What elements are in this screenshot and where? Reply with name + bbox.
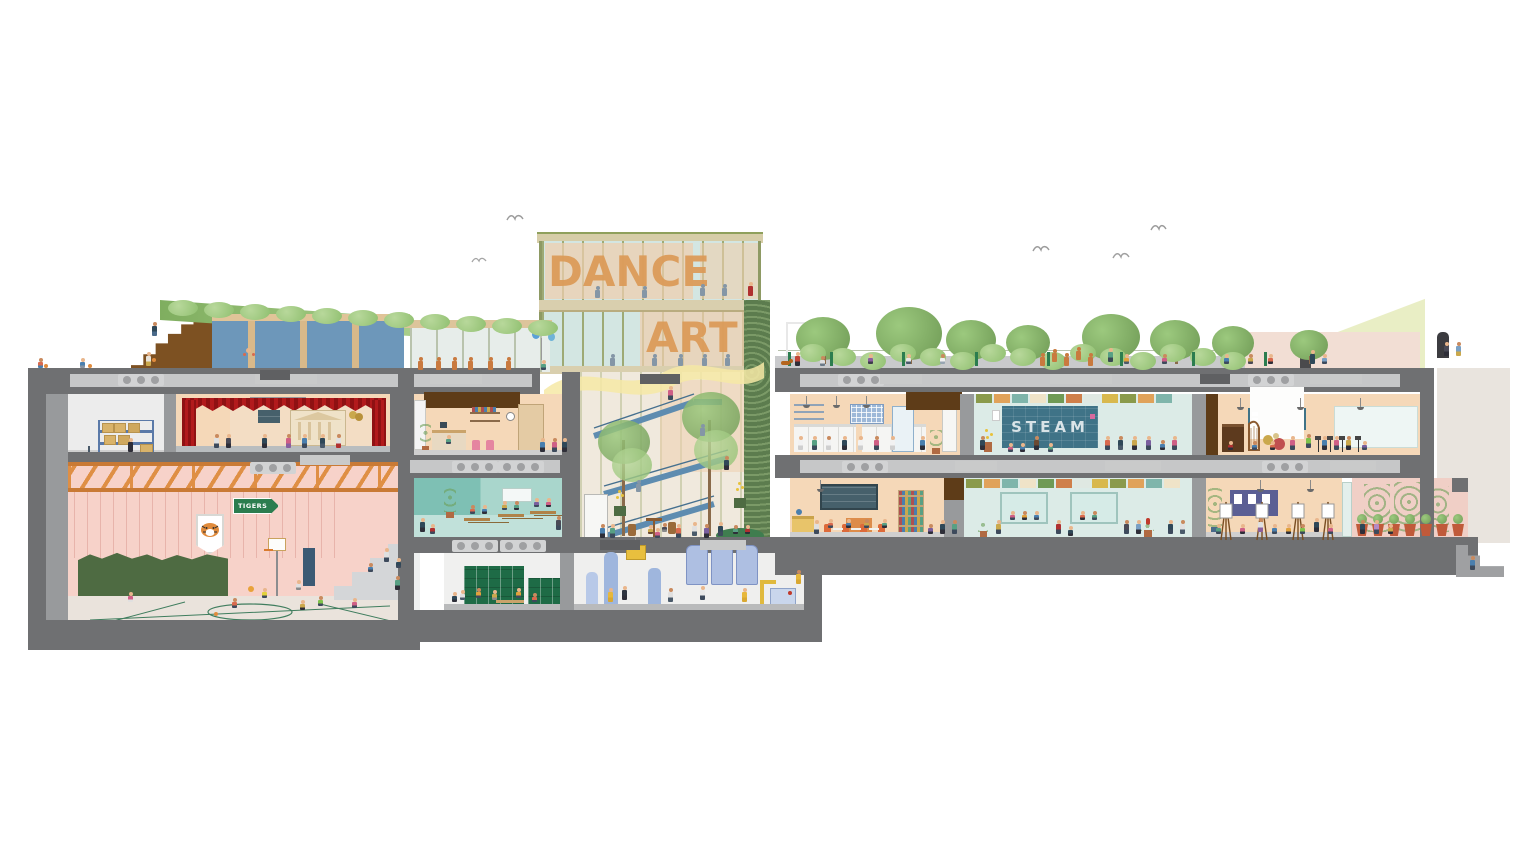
person-figure	[600, 524, 605, 538]
storage-theater-wall	[164, 394, 176, 455]
person-figure	[1322, 436, 1327, 450]
slab-panel	[1105, 461, 1161, 471]
vent-circle	[151, 376, 159, 384]
vent-circle	[1281, 376, 1289, 384]
tile-band-tile	[1012, 394, 1028, 403]
tile-band-tile	[1102, 394, 1118, 403]
tile-band-tile	[1030, 394, 1046, 403]
sunflower	[616, 496, 619, 499]
art-display-card	[1234, 494, 1242, 504]
person-figure	[692, 522, 697, 536]
person-figure	[430, 524, 435, 534]
person-figure	[864, 519, 869, 528]
person-figure	[1068, 526, 1073, 536]
glass-partition	[1342, 482, 1352, 537]
orange-silhouette-figure	[506, 357, 511, 370]
person-figure	[940, 354, 945, 364]
cabinet-light	[788, 591, 792, 595]
orange-silhouette-figure	[1040, 353, 1045, 366]
person-figure	[795, 352, 800, 366]
person-figure	[1022, 511, 1027, 520]
person-figure	[906, 354, 911, 364]
silhouette-figure	[678, 354, 683, 366]
silhouette-figure	[725, 354, 730, 366]
person-figure	[146, 352, 151, 366]
person-figure	[514, 501, 519, 510]
hanging-lamp	[1240, 398, 1241, 407]
person-figure	[608, 588, 613, 602]
yellow-pipe	[760, 580, 776, 584]
hanging-lamp	[806, 396, 807, 405]
person-figure	[798, 436, 803, 450]
cafe-chair	[628, 524, 636, 536]
storage-box	[102, 423, 114, 433]
upright-piano	[1222, 424, 1244, 452]
tile-band-tile	[984, 479, 1000, 488]
person-figure	[1008, 443, 1013, 452]
locker-bench	[496, 600, 524, 603]
person-figure	[1146, 436, 1151, 450]
person-figure	[541, 360, 546, 370]
water-tank	[686, 545, 708, 585]
person-figure	[1252, 441, 1257, 450]
right-ground-slab	[775, 537, 1478, 575]
basketball	[44, 364, 48, 368]
person-figure	[1240, 524, 1245, 534]
steam-mural-label: STEAM	[1011, 418, 1089, 436]
tile-band-tile	[1002, 479, 1018, 488]
tile-band-tile	[1110, 479, 1126, 488]
classroom-blackboard	[820, 484, 878, 510]
person-figure	[1132, 436, 1137, 450]
balloon-strings	[541, 338, 542, 360]
person-figure	[562, 438, 567, 452]
person-figure	[1108, 348, 1113, 362]
person-figure	[296, 580, 301, 590]
person-figure	[534, 498, 539, 507]
music-stand-top	[1315, 436, 1321, 440]
temple-column	[298, 422, 301, 440]
greenhouse-pot-plant	[1421, 514, 1431, 524]
person-figure	[1048, 443, 1053, 452]
orange-silhouette-figure	[418, 357, 423, 370]
person-figure	[1374, 520, 1379, 534]
person-figure	[1328, 524, 1333, 534]
person-figure	[420, 518, 425, 532]
classroom-bookcase	[898, 490, 924, 536]
office-shelf	[470, 412, 500, 414]
person-figure	[395, 576, 400, 590]
person-figure	[668, 386, 673, 400]
person-figure	[396, 558, 401, 568]
basketball	[214, 612, 218, 616]
person-figure	[226, 434, 231, 448]
person-figure	[610, 524, 615, 538]
globe	[796, 509, 802, 515]
person-figure	[1456, 342, 1461, 356]
corridor-art-wall	[1192, 478, 1206, 537]
person-figure	[1360, 520, 1365, 534]
person-figure	[874, 436, 879, 450]
person-figure	[996, 520, 1001, 534]
person-figure	[502, 501, 507, 510]
person-figure	[540, 438, 545, 452]
bird-icon	[471, 255, 487, 265]
person-figure	[476, 588, 481, 598]
silhouette-figure	[702, 354, 707, 366]
classroom-header	[944, 478, 964, 500]
swimmer	[246, 348, 251, 353]
orange-silhouette-figure	[1064, 353, 1069, 366]
orange-silhouette-figure	[468, 357, 473, 370]
person-figure	[492, 590, 497, 600]
gym-door	[303, 548, 315, 586]
theater-chalkboard	[258, 410, 280, 423]
greenhouse-top-post	[1452, 478, 1468, 492]
vent-circle	[485, 542, 493, 550]
slab-panel	[880, 374, 922, 384]
lab-cabinet	[892, 406, 914, 452]
fence-post	[1192, 352, 1195, 366]
vent-circle	[1253, 376, 1261, 384]
person-figure	[920, 436, 925, 450]
cafeteria-whiteboard	[502, 488, 532, 502]
tiger-mascot-icon	[200, 522, 220, 538]
person-figure	[1268, 354, 1273, 364]
person-figure	[320, 434, 325, 448]
slab-panel	[1330, 461, 1376, 471]
person-figure	[828, 519, 833, 528]
classroom-desk	[833, 528, 843, 530]
basketball-rim	[264, 549, 273, 551]
person-figure	[742, 588, 747, 602]
person-figure	[38, 358, 43, 368]
hanging-lamp	[866, 396, 867, 405]
person-figure	[1180, 520, 1185, 534]
slab-panel-dark	[640, 374, 680, 384]
person-figure	[1388, 524, 1393, 534]
atrium-tree	[612, 448, 652, 482]
person-figure	[1444, 342, 1449, 356]
orange-silhouette-figure	[436, 357, 441, 370]
storage-box	[104, 435, 116, 445]
person-figure	[286, 434, 291, 448]
vent-circle	[857, 376, 865, 384]
person-figure	[532, 593, 537, 602]
tile-band-tile	[1120, 394, 1136, 403]
pool-hall-column	[352, 321, 359, 374]
slab-panel-dark	[600, 540, 640, 550]
person-figure	[1362, 441, 1367, 450]
person-figure	[1168, 520, 1173, 534]
person-figure	[814, 520, 819, 534]
fence-post	[902, 352, 905, 366]
person-figure	[1334, 436, 1339, 450]
plant-pot	[932, 448, 940, 454]
person-figure	[1314, 518, 1319, 532]
person-figure	[980, 436, 985, 450]
tile-band-tile	[1084, 394, 1100, 403]
person-figure	[858, 436, 863, 450]
sunflower-planter	[734, 498, 746, 508]
drama-masks-icon	[348, 410, 364, 422]
exit-steps	[1456, 545, 1504, 577]
music-stand	[1318, 440, 1319, 452]
person-figure	[1216, 524, 1221, 534]
fence-post	[1264, 352, 1267, 366]
tile-band-tile	[1066, 394, 1082, 403]
person-figure	[1322, 354, 1327, 364]
person-figure	[1286, 524, 1291, 534]
vent-circle	[471, 542, 479, 550]
silhouette-figure	[595, 286, 600, 298]
person-figure	[262, 588, 267, 598]
hanging-lamp	[820, 480, 821, 489]
greenhouse-pot-plant	[1389, 514, 1399, 524]
person-figure	[1056, 520, 1061, 534]
vent-circle	[503, 463, 511, 471]
person-figure	[704, 524, 709, 538]
cafeteria-table	[464, 518, 490, 521]
slab-panel	[300, 455, 350, 465]
basement-foundation-slab	[412, 610, 822, 642]
gas-cylinder	[648, 568, 661, 608]
plant-pot	[446, 512, 454, 518]
silhouette-figure	[610, 354, 615, 366]
basement-divider-wall	[560, 553, 574, 610]
silhouette-figure	[652, 354, 657, 366]
tigers-pennant: TIGERS	[233, 498, 279, 514]
vent-circle	[533, 542, 541, 550]
orange-silhouette-figure	[488, 357, 493, 370]
person-figure	[1034, 436, 1039, 450]
fence-post	[975, 352, 978, 366]
silhouette-figure	[722, 284, 727, 296]
person-figure	[1118, 436, 1123, 450]
person-figure	[336, 434, 341, 448]
cafeteria-table	[530, 511, 556, 514]
bird-icon	[1032, 243, 1050, 254]
orange-silhouette-figure	[1088, 353, 1093, 366]
bird-icon	[506, 212, 524, 223]
person-figure	[1270, 441, 1275, 450]
person-figure	[1124, 520, 1129, 534]
easel	[1290, 500, 1306, 542]
vent-circle	[457, 463, 465, 471]
tile-band-tile	[1048, 394, 1064, 403]
person-figure	[152, 322, 157, 336]
temple-column	[308, 422, 311, 440]
easel	[1320, 500, 1336, 542]
lab-commons-wall	[960, 394, 974, 455]
greenhouse-pot-plant	[1453, 514, 1463, 524]
person-figure	[846, 519, 851, 528]
person-figure	[1346, 436, 1351, 450]
atrium-left-wall	[562, 372, 580, 540]
right-end-wall	[1420, 368, 1434, 538]
vent-circle	[1295, 463, 1303, 471]
person-figure	[318, 596, 323, 606]
roof-bush	[860, 352, 886, 370]
silhouette-figure	[700, 284, 705, 296]
person-figure	[940, 520, 945, 534]
person-figure	[556, 516, 561, 530]
lab-beam	[906, 392, 962, 410]
living-green-wall	[744, 300, 770, 540]
dog-head	[789, 359, 793, 363]
vent-circle	[283, 464, 291, 472]
person-figure	[128, 438, 133, 452]
greenhouse-pot-plant	[1405, 514, 1415, 524]
tile-band-tile	[1138, 394, 1154, 403]
person-figure	[1470, 556, 1475, 570]
person-figure	[812, 436, 817, 450]
storage-box	[128, 423, 140, 433]
person-figure	[368, 563, 373, 572]
person-figure	[1092, 511, 1097, 520]
vent-circle	[255, 464, 263, 472]
tile-band-tile	[1128, 479, 1144, 488]
basketball	[88, 364, 92, 368]
person-figure	[655, 528, 660, 538]
roof-bush	[830, 348, 856, 366]
person-figure	[1310, 350, 1315, 364]
person-figure	[1300, 524, 1305, 534]
temple-column	[328, 422, 331, 440]
water-tank	[711, 545, 733, 585]
lab-plant	[930, 430, 942, 448]
wall-poster	[992, 410, 1000, 421]
silhouette-figure	[636, 480, 641, 492]
silhouette-figure	[700, 424, 705, 436]
person-figure	[384, 548, 389, 562]
hanging-lamp	[1360, 398, 1361, 407]
person-figure	[796, 570, 801, 584]
person-figure	[516, 588, 521, 598]
person-figure	[214, 434, 219, 448]
person-figure	[80, 358, 85, 368]
vent-circle	[471, 463, 479, 471]
tower-floor-band	[539, 300, 761, 312]
person-figure	[1228, 441, 1233, 450]
person-figure	[842, 436, 847, 450]
vent-circle	[1281, 463, 1289, 471]
person-figure	[882, 519, 887, 528]
hanging-lamp	[836, 396, 837, 405]
slab-panel	[1050, 374, 1112, 384]
person-figure	[546, 498, 551, 507]
person-figure	[1248, 354, 1253, 364]
vent-circle	[269, 464, 277, 472]
person-figure	[748, 282, 753, 296]
person-figure	[820, 356, 825, 366]
person-figure	[662, 523, 667, 532]
tile-band-tile	[1156, 394, 1172, 403]
plant-pot	[1144, 530, 1152, 537]
center-left-wall	[398, 368, 414, 622]
vent-circle	[875, 463, 883, 471]
tile-band-tile	[1146, 479, 1162, 488]
person-figure	[1010, 511, 1015, 520]
theater-curtain-right	[372, 400, 386, 447]
person-figure	[668, 588, 673, 602]
sunflower-planter	[614, 506, 626, 516]
person-figure	[446, 435, 451, 444]
person-figure	[470, 505, 475, 514]
slab-panel-dark	[260, 370, 290, 380]
commons-music-wall	[1192, 394, 1206, 455]
music-room-wall-brown	[1206, 394, 1218, 455]
theater-curtain-left	[182, 400, 196, 447]
tile-band-tile	[1092, 479, 1108, 488]
person-figure	[128, 592, 133, 602]
shelf-books	[472, 407, 496, 412]
steam-mural-board: STEAM	[1002, 406, 1098, 448]
tile-band-tile	[966, 479, 982, 488]
easel	[1218, 500, 1234, 542]
person-figure	[1136, 520, 1141, 534]
bird-icon	[1112, 250, 1130, 261]
orange-silhouette-figure	[1052, 349, 1057, 362]
slab-panel	[700, 540, 746, 550]
vent-circle	[843, 376, 851, 384]
vent-circle	[137, 376, 145, 384]
person-figure	[745, 525, 750, 534]
cafe-chair	[668, 522, 676, 534]
orange-silhouette-figure	[452, 357, 457, 370]
person-figure	[1272, 524, 1277, 534]
person-figure	[1124, 354, 1129, 364]
vent-circle	[531, 463, 539, 471]
person-figure	[1306, 434, 1311, 448]
cafeteria-table	[498, 514, 524, 517]
roof-bush	[980, 344, 1006, 362]
vent-circle	[123, 376, 131, 384]
slab-panel	[430, 374, 482, 384]
plant-pot	[984, 442, 992, 452]
person-figure	[952, 520, 957, 534]
vent-circle	[1267, 463, 1275, 471]
vent-circle	[1267, 376, 1275, 384]
mural-sticky-note	[1090, 414, 1095, 419]
person-figure	[868, 354, 873, 364]
person-figure	[724, 456, 729, 470]
person-figure	[1258, 518, 1263, 532]
roof-corridor-glazing	[410, 328, 550, 372]
person-figure	[262, 434, 267, 448]
person-figure	[552, 438, 557, 452]
hanging-lamp	[1260, 480, 1261, 489]
person-figure	[1020, 443, 1025, 452]
sunflower	[736, 488, 739, 491]
fence-post	[1047, 352, 1050, 366]
desk-monitor	[440, 422, 447, 428]
right-mid-slab-inner	[800, 460, 1400, 473]
bird-icon	[1150, 222, 1167, 233]
slab-panel	[955, 461, 997, 471]
gas-cylinder	[586, 572, 598, 608]
basketball	[152, 358, 156, 362]
wall-clock	[506, 412, 515, 421]
person-figure	[1105, 436, 1110, 450]
roof-bush	[1130, 352, 1156, 370]
gym-roof-truss	[68, 462, 398, 492]
person-figure	[890, 436, 895, 450]
person-figure	[676, 524, 681, 538]
person-figure	[1224, 354, 1229, 364]
person-figure	[232, 598, 237, 608]
person-figure	[1034, 511, 1039, 520]
